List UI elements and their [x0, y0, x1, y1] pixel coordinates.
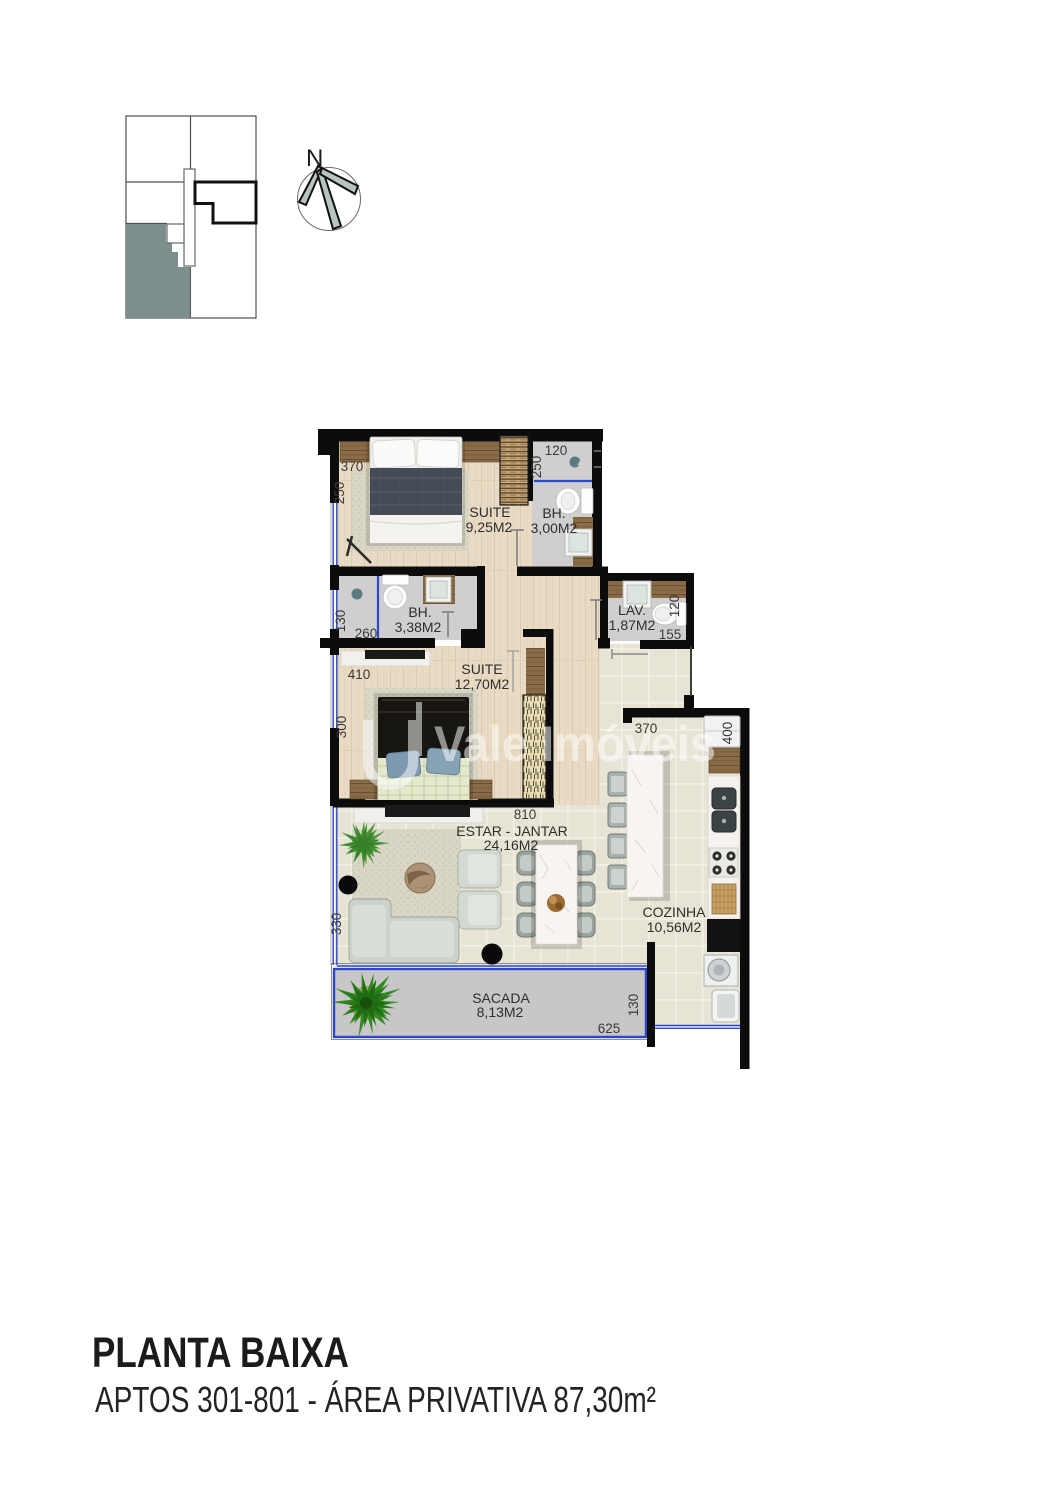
svg-text:COZINHA: COZINHA — [643, 904, 707, 920]
svg-text:APTOS 301-801 - ÁREA PRIVATIVA: APTOS 301-801 - ÁREA PRIVATIVA 87,30m² — [95, 1379, 656, 1420]
svg-text:120: 120 — [667, 595, 682, 618]
svg-text:250: 250 — [529, 456, 544, 479]
svg-text:155: 155 — [659, 627, 682, 642]
svg-text:250: 250 — [332, 482, 347, 505]
svg-text:1,87M2: 1,87M2 — [609, 617, 656, 633]
svg-text:300: 300 — [334, 716, 349, 739]
svg-text:625: 625 — [598, 1021, 621, 1036]
svg-text:8,13M2: 8,13M2 — [477, 1004, 524, 1020]
svg-text:3,00M2: 3,00M2 — [531, 520, 578, 536]
svg-text:24,16M2: 24,16M2 — [484, 837, 539, 853]
svg-text:810: 810 — [514, 807, 537, 822]
svg-text:SUITE: SUITE — [461, 661, 502, 677]
svg-text:130: 130 — [626, 994, 641, 1017]
svg-text:130: 130 — [333, 610, 348, 633]
svg-text:BH.: BH. — [408, 604, 431, 620]
svg-text:400: 400 — [720, 722, 735, 745]
svg-text:SUITE: SUITE — [469, 504, 510, 520]
svg-text:120: 120 — [545, 443, 568, 458]
svg-text:LAV.: LAV. — [618, 602, 646, 618]
svg-text:9,25M2: 9,25M2 — [466, 519, 513, 535]
svg-text:12,70M2: 12,70M2 — [455, 676, 510, 692]
svg-text:370: 370 — [341, 459, 364, 474]
svg-text:BH.: BH. — [542, 505, 565, 521]
svg-text:260: 260 — [355, 626, 378, 641]
svg-text:410: 410 — [348, 667, 371, 682]
svg-text:PLANTA BAIXA: PLANTA BAIXA — [92, 1329, 349, 1377]
svg-text:3,38M2: 3,38M2 — [395, 619, 442, 635]
svg-text:10,56M2: 10,56M2 — [647, 919, 702, 935]
svg-text:Vale Imóveis: Vale Imóveis — [434, 716, 716, 772]
svg-text:330: 330 — [329, 913, 344, 936]
